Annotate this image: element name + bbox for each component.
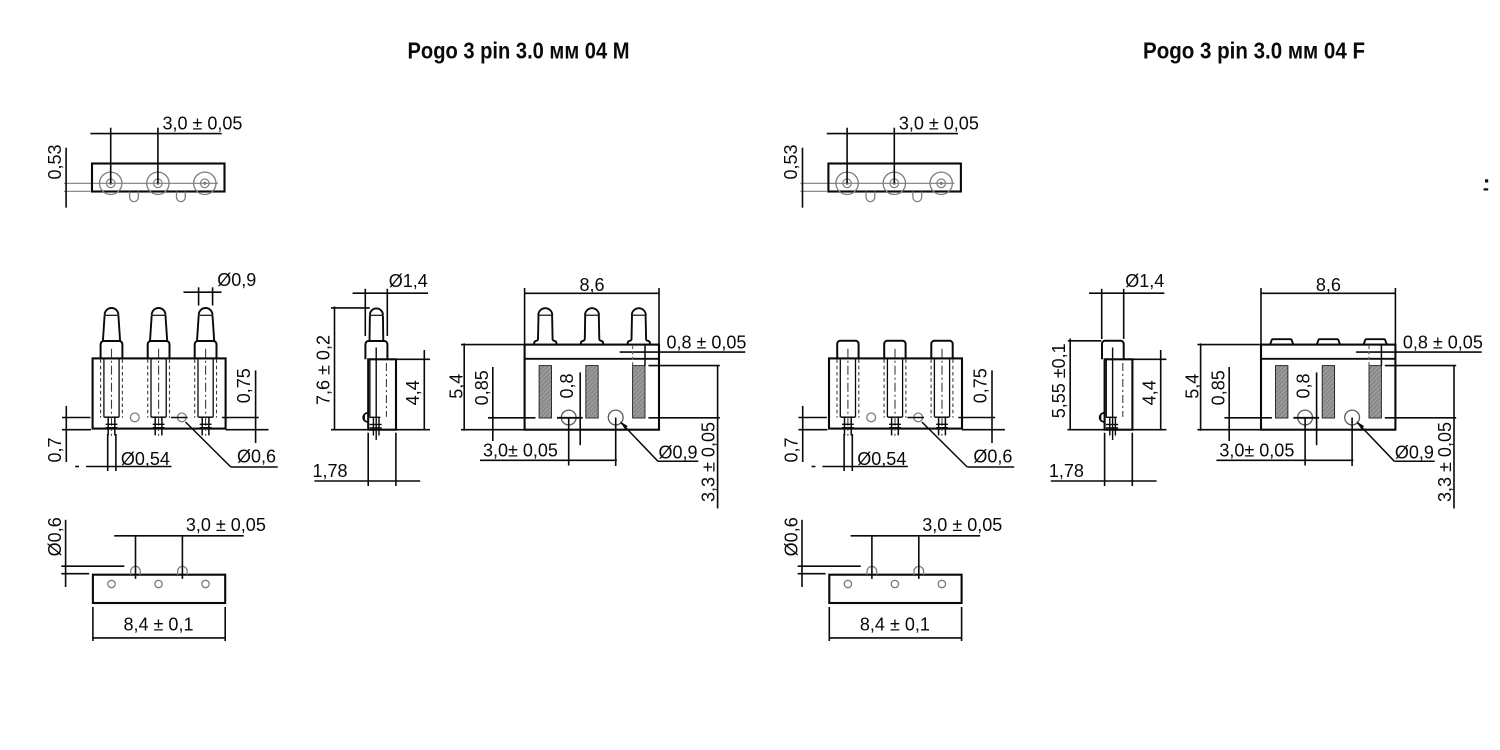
svg-text:0,7: 0,7 (781, 437, 801, 462)
svg-text:4,4: 4,4 (403, 380, 423, 405)
svg-text:4,4: 4,4 (1139, 380, 1159, 405)
svg-text:1,78: 1,78 (1049, 461, 1084, 481)
svg-text:8,6: 8,6 (579, 275, 604, 295)
svg-text:3,0± 0,05: 3,0± 0,05 (1219, 441, 1294, 461)
svg-text:3,3 ± 0,05: 3,3 ± 0,05 (1435, 422, 1455, 502)
svg-text:5,55 ±0,1: 5,55 ±0,1 (1049, 343, 1069, 418)
svg-text:0,8: 0,8 (1293, 373, 1313, 398)
svg-text:Ø0,6: Ø0,6 (973, 447, 1012, 467)
svg-text:1,78: 1,78 (312, 461, 347, 481)
svg-text:Pogo 3 pin 3.0 мм 04 M: Pogo 3 pin 3.0 мм 04 M (408, 38, 630, 64)
svg-text:8,4 ± 0,1: 8,4 ± 0,1 (124, 615, 194, 635)
svg-text:Ø1,4: Ø1,4 (389, 271, 428, 291)
svg-text:Ø0,6: Ø0,6 (781, 517, 801, 556)
svg-text:Ø0,54: Ø0,54 (857, 449, 906, 469)
svg-text:3,0± 0,05: 3,0± 0,05 (483, 441, 558, 461)
svg-text:Ø0,9: Ø0,9 (217, 270, 256, 290)
svg-text:0,85: 0,85 (472, 370, 492, 405)
svg-text:3,0 ± 0,05: 3,0 ± 0,05 (163, 113, 243, 133)
svg-text:Ø0,6: Ø0,6 (237, 447, 276, 467)
svg-text:3,3 ± 0,05: 3,3 ± 0,05 (699, 422, 719, 502)
svg-text:8,6: 8,6 (1316, 275, 1341, 295)
svg-text:0,75: 0,75 (234, 368, 254, 403)
svg-text:0,53: 0,53 (781, 144, 801, 179)
svg-text:Ø1,4: Ø1,4 (1125, 271, 1164, 291)
svg-text:0,75: 0,75 (970, 368, 990, 403)
svg-text:0,7: 0,7 (45, 437, 65, 462)
svg-text:5,4: 5,4 (1183, 374, 1203, 399)
svg-text:7,6 ± 0,2: 7,6 ± 0,2 (314, 335, 334, 405)
svg-text:3,0 ± 0,05: 3,0 ± 0,05 (899, 113, 979, 133)
svg-text:0,8 ± 0,05: 0,8 ± 0,05 (667, 332, 747, 352)
svg-text:3,0 ± 0,05: 3,0 ± 0,05 (186, 515, 266, 535)
svg-text:0,53: 0,53 (45, 144, 65, 179)
svg-text:Ø0,54: Ø0,54 (121, 449, 170, 469)
svg-text:3,0 ± 0,05: 3,0 ± 0,05 (922, 515, 1002, 535)
svg-text:Pogo 3 pin 3.0 мм 04 F: Pogo 3 pin 3.0 мм 04 F (1143, 38, 1365, 64)
svg-text:Ø0,9: Ø0,9 (659, 442, 698, 462)
svg-text:0,8: 0,8 (557, 373, 577, 398)
svg-text:5,4: 5,4 (446, 374, 466, 399)
svg-text:8,4 ± 0,1: 8,4 ± 0,1 (860, 615, 930, 635)
svg-text:0,8 ± 0,05: 0,8 ± 0,05 (1403, 332, 1483, 352)
svg-text:Ø0,6: Ø0,6 (45, 517, 65, 556)
svg-text:0,85: 0,85 (1208, 370, 1228, 405)
svg-text:Ø0,9: Ø0,9 (1395, 442, 1434, 462)
